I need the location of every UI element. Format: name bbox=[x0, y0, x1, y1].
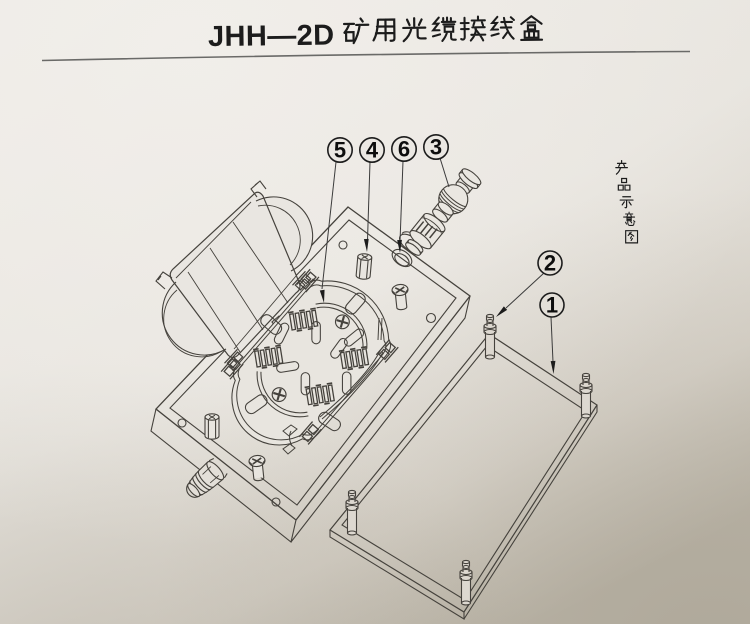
svg-text:6: 6 bbox=[398, 137, 410, 162]
svg-text:2: 2 bbox=[544, 251, 556, 276]
svg-text:5: 5 bbox=[334, 138, 346, 163]
svg-text:3: 3 bbox=[430, 135, 442, 160]
svg-text:JHH—2D: JHH—2D bbox=[208, 19, 335, 53]
svg-text:4: 4 bbox=[366, 138, 379, 163]
svg-text:1: 1 bbox=[546, 293, 558, 318]
